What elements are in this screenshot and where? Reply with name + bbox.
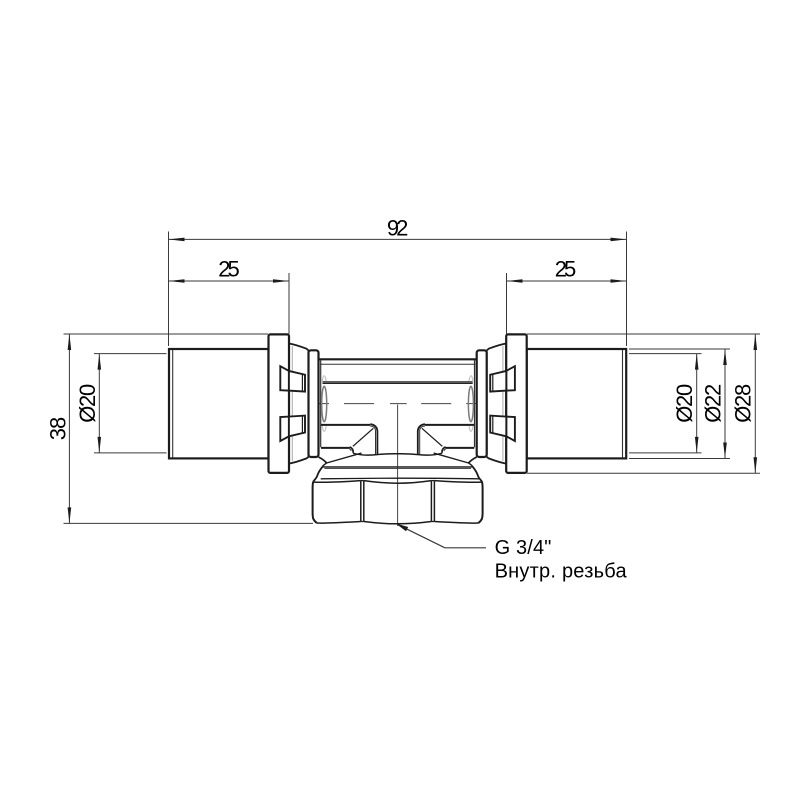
svg-text:Ø20: Ø20: [75, 384, 100, 423]
svg-text:Ø22: Ø22: [701, 384, 726, 423]
svg-text:25: 25: [555, 257, 577, 282]
svg-text:G 3/4": G 3/4": [495, 537, 552, 559]
svg-text:25: 25: [218, 257, 240, 282]
svg-text:92: 92: [387, 216, 409, 241]
svg-text:38: 38: [45, 417, 70, 441]
svg-text:Ø20: Ø20: [672, 384, 697, 423]
svg-text:Внутр. резьба: Внутр. резьба: [495, 561, 628, 583]
svg-text:Ø28: Ø28: [730, 384, 755, 423]
